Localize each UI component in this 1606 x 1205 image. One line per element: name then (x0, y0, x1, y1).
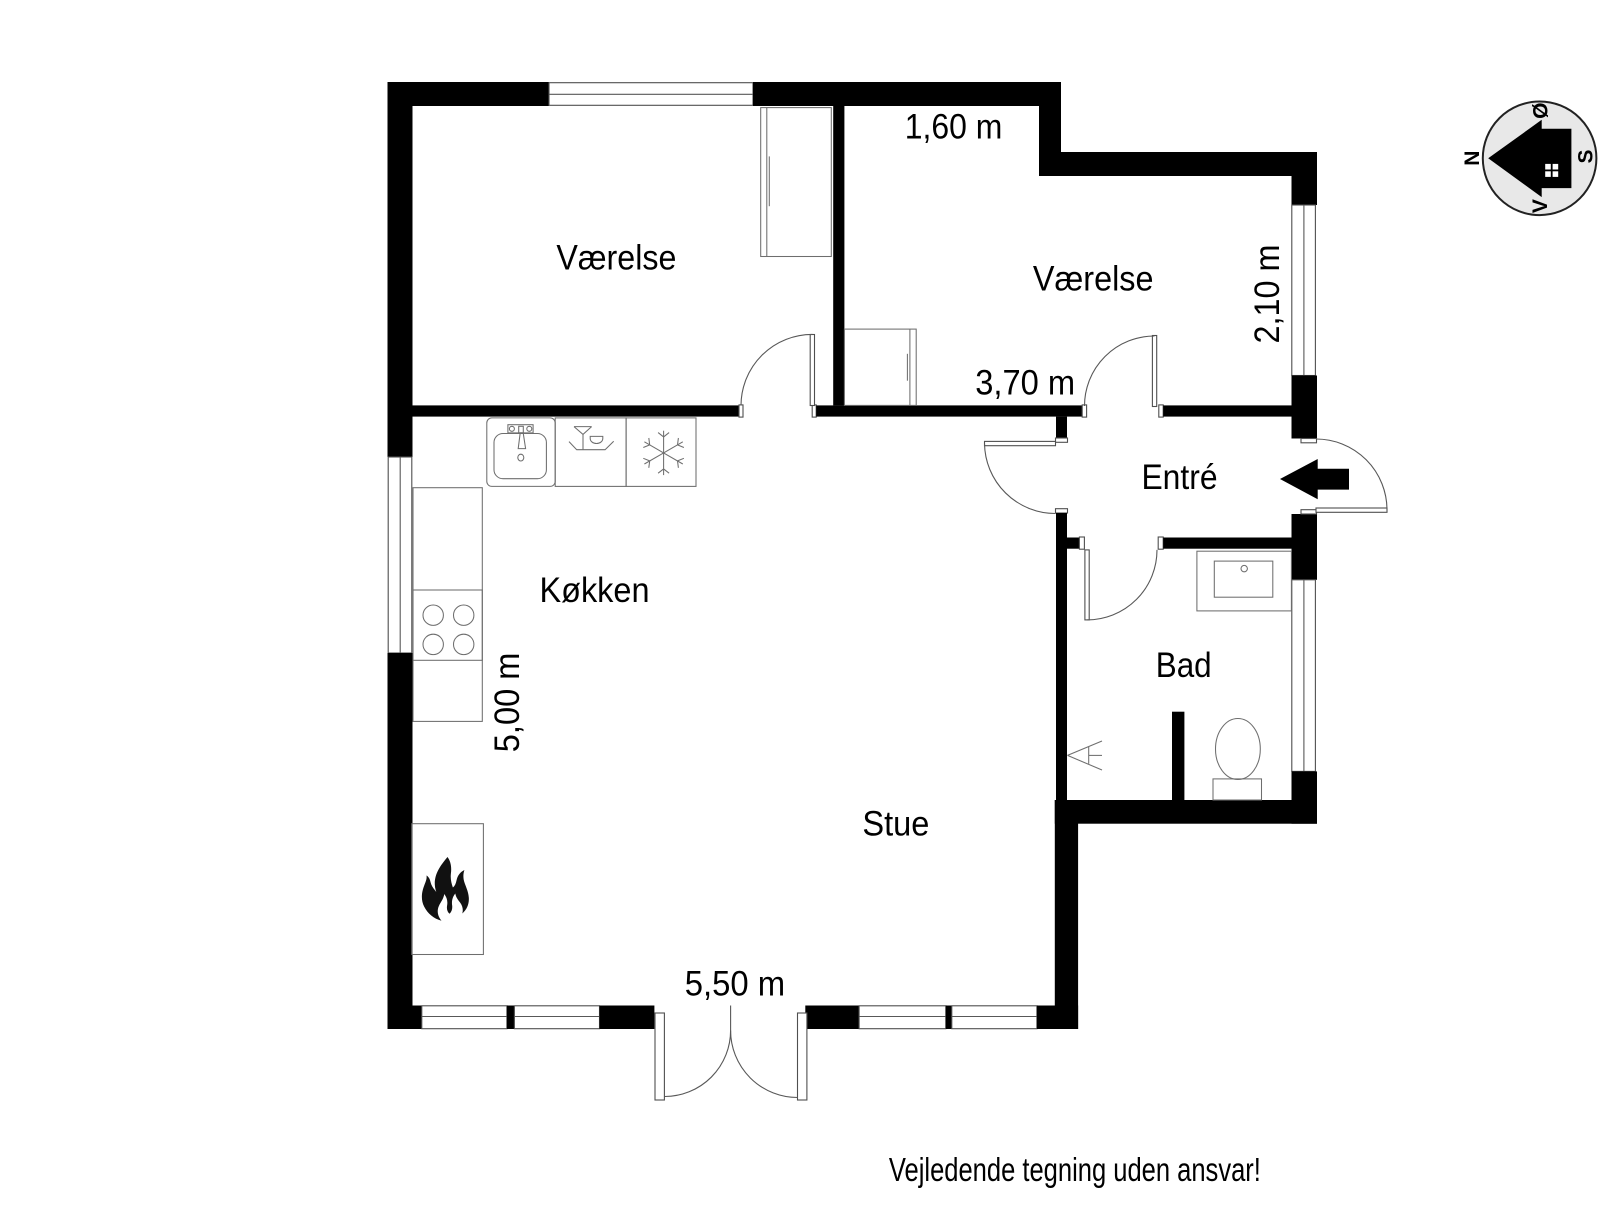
svg-text:Værelse: Værelse (556, 238, 676, 277)
svg-text:Køkken: Køkken (540, 571, 650, 610)
svg-text:V: V (1529, 199, 1552, 213)
svg-text:N: N (1461, 151, 1484, 166)
svg-text:Vejledende tegning uden ansvar: Vejledende tegning uden ansvar! (889, 1151, 1261, 1188)
svg-text:1,60 m: 1,60 m (905, 107, 1003, 146)
svg-text:S: S (1575, 149, 1598, 163)
svg-text:5,00 m: 5,00 m (488, 653, 527, 753)
svg-text:2,10 m: 2,10 m (1248, 245, 1287, 344)
svg-text:5,50 m: 5,50 m (685, 965, 785, 1004)
svg-text:3,70 m: 3,70 m (975, 364, 1075, 403)
svg-text:Bad: Bad (1156, 646, 1212, 685)
svg-text:Værelse: Værelse (1033, 259, 1154, 298)
svg-text:Stue: Stue (862, 804, 929, 843)
svg-text:Entré: Entré (1141, 458, 1217, 497)
svg-text:Ø: Ø (1530, 103, 1553, 119)
